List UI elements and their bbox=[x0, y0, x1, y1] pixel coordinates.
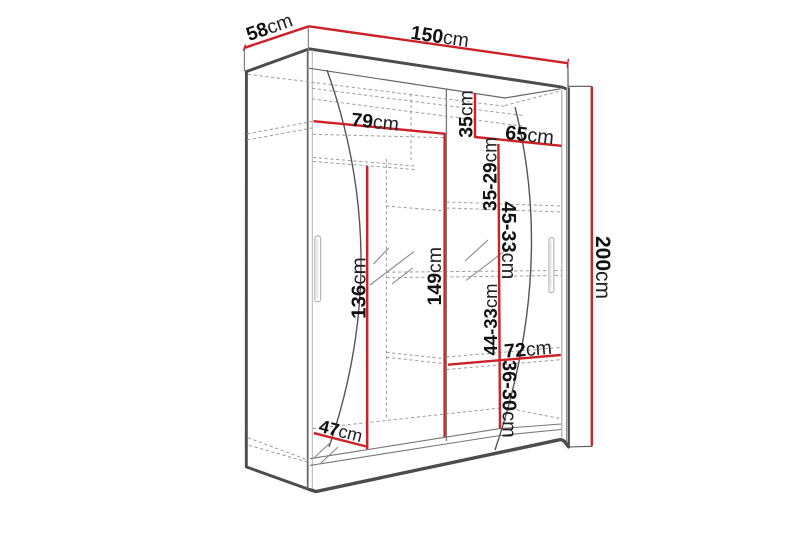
svg-text:200cm: 200cm bbox=[591, 236, 614, 299]
svg-text:79cm: 79cm bbox=[350, 109, 400, 136]
svg-text:35cm: 35cm bbox=[456, 90, 478, 138]
svg-text:149cm: 149cm bbox=[424, 247, 446, 306]
svg-text:36-30cm: 36-30cm bbox=[498, 360, 520, 438]
svg-text:35-29cm: 35-29cm bbox=[481, 137, 502, 211]
svg-text:72cm: 72cm bbox=[503, 337, 552, 363]
svg-text:136cm: 136cm bbox=[347, 257, 370, 319]
svg-text:45-33cm: 45-33cm bbox=[497, 202, 519, 280]
svg-text:44-33cm: 44-33cm bbox=[480, 284, 501, 356]
